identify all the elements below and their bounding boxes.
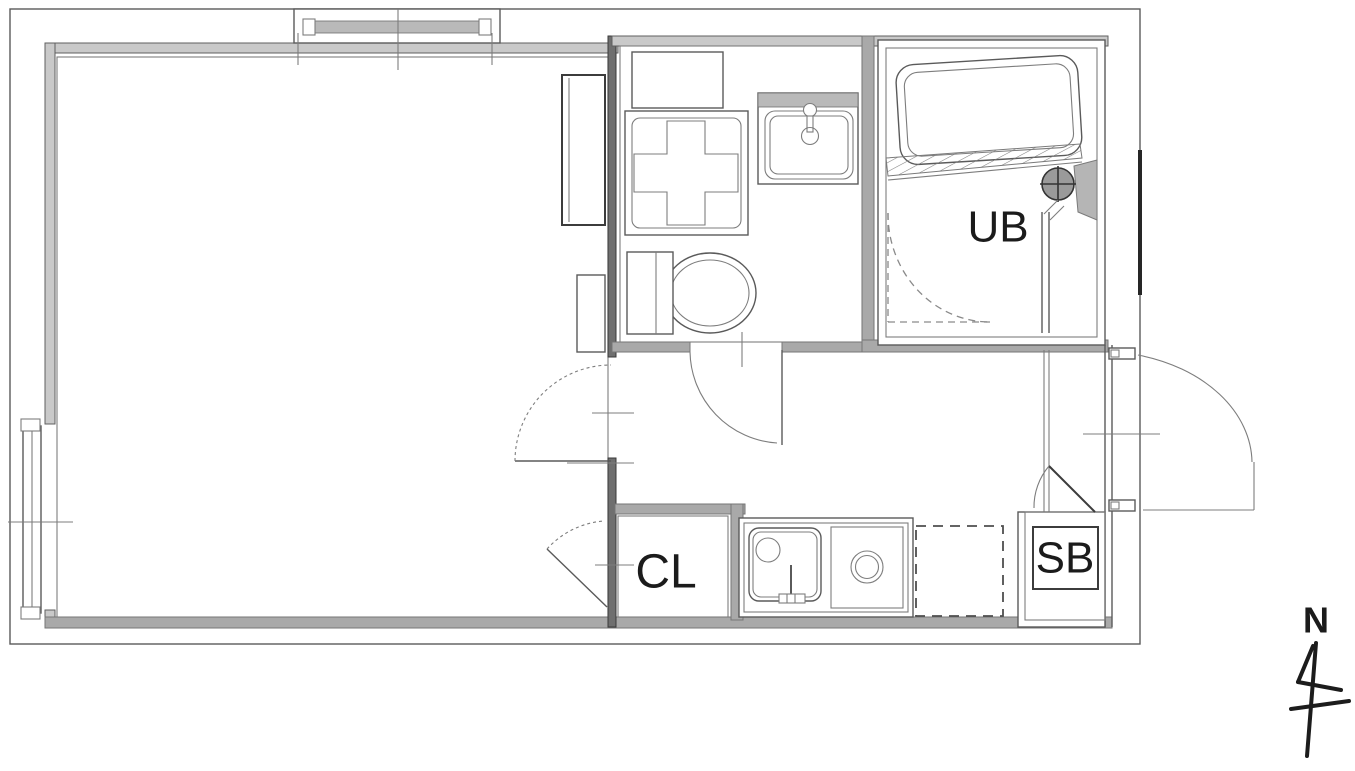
closet-door — [547, 521, 607, 607]
living-left-wall-upper — [45, 43, 55, 424]
entry-jamb-bottom-notch — [1111, 502, 1119, 509]
left-window — [8, 419, 73, 619]
unit-bath-label: UB — [967, 203, 1028, 252]
toilet-door — [690, 350, 782, 445]
living-furniture — [562, 75, 605, 352]
washing-machine-pan — [625, 111, 748, 235]
north-crossbar — [1291, 701, 1349, 709]
kitchen-counter — [739, 518, 913, 617]
stove — [831, 527, 903, 608]
left-window-jamb-top — [21, 419, 40, 431]
living-inner-face — [57, 57, 608, 618]
partition-lower — [608, 458, 616, 627]
toilet-door-arc — [690, 352, 777, 443]
vanity-sink — [758, 93, 858, 184]
entry-door-panel — [1049, 466, 1095, 512]
central-partition-wall — [608, 36, 616, 627]
refrigerator-space — [916, 526, 1003, 616]
bottom-wall — [45, 617, 1112, 628]
bath-corner-shading — [1074, 160, 1097, 220]
toilet-bottom-wall-left — [612, 342, 690, 352]
entry-door-swing-arc — [1138, 355, 1252, 462]
closet-label: CL — [635, 546, 696, 599]
window-glass — [304, 21, 490, 33]
stove-plate — [831, 527, 903, 608]
unit-bath — [878, 40, 1105, 345]
shelf — [632, 52, 723, 108]
north-arrow: N — [1291, 600, 1349, 757]
shoe-box-label: SB — [1036, 534, 1095, 583]
partition-upper — [608, 36, 616, 357]
balcony-window — [294, 9, 500, 70]
toilet-tank — [627, 252, 673, 334]
closet-door-leaf — [547, 549, 607, 607]
faucet-head — [804, 104, 817, 117]
toilet-room — [625, 52, 858, 334]
north-flag-base — [1298, 682, 1341, 690]
living-room — [45, 43, 618, 628]
faucet-stem — [807, 116, 813, 132]
entry-door-inner-arc — [1034, 466, 1049, 508]
toilet-bowl — [664, 253, 756, 333]
closet-top-wall — [615, 504, 745, 514]
kitchen-sink — [749, 528, 821, 603]
floor-plan-drawing: UB CL SB N — [0, 0, 1355, 771]
toilet — [627, 252, 756, 334]
sink-outer — [749, 528, 821, 601]
sink-faucet-base — [779, 594, 805, 603]
living-top-wall — [45, 43, 618, 53]
toilet-bottom-wall-right — [782, 342, 862, 352]
closet-door-arc — [547, 521, 604, 549]
toilet-ub-divider-wall — [862, 36, 874, 352]
pan-outer — [625, 111, 748, 235]
left-window-jamb-bottom — [21, 607, 40, 619]
north-flag-diagonal — [1298, 646, 1313, 682]
small-cabinet — [577, 275, 605, 352]
floor-plan-canvas: UB CL SB N — [0, 0, 1355, 771]
window-end-cap-right — [479, 19, 491, 35]
north-label: N — [1303, 600, 1329, 641]
entry-jamb-top-notch — [1111, 350, 1119, 357]
window-end-cap-left — [303, 19, 315, 35]
entry-door — [1034, 348, 1254, 512]
